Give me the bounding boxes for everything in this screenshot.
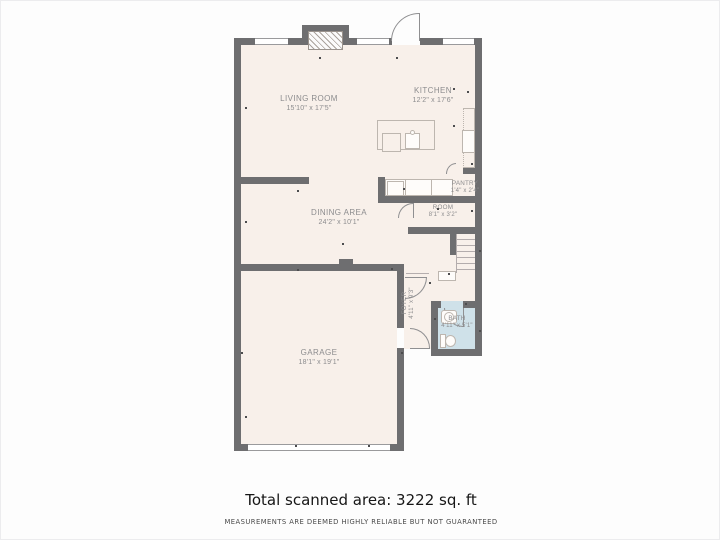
room-door-leaf (413, 203, 414, 218)
room-dims: 1'4" x 2'4" (447, 188, 483, 196)
scan-dot (368, 445, 370, 447)
scan-dot (467, 91, 469, 93)
room-dims: 18'1" x 19'1" (269, 358, 369, 368)
scan-dot (403, 188, 405, 190)
scan-dot (245, 221, 247, 223)
entry-door-arc (391, 13, 419, 41)
label-pantry: PANTRY 1'4" x 2'4" (447, 180, 483, 196)
wall-stairs-left (450, 234, 456, 255)
scan-dot (437, 208, 439, 210)
toilet-bowl (445, 335, 456, 347)
floor-plan: LIVING ROOM 15'10" x 17'5" KITCHEN 12'2"… (1, 1, 720, 540)
label-room: ROOM 8'1" x 3'2" (417, 204, 469, 220)
scan-dot (396, 57, 398, 59)
garage-entry-door-leaf (410, 348, 430, 349)
scan-dot (319, 57, 321, 59)
wall-bath-left (431, 301, 438, 356)
scan-dot (391, 268, 393, 270)
scan-dot (471, 163, 473, 165)
wall-left (234, 38, 241, 451)
scan-dot (448, 273, 450, 275)
label-living-room: LIVING ROOM 15'10" x 17'5" (259, 94, 359, 113)
room-name: LIVING ROOM (259, 94, 359, 104)
wall-room-top (378, 196, 482, 203)
fireplace (308, 31, 343, 50)
scan-dot (479, 250, 481, 252)
wall-dining-garage (234, 264, 404, 271)
staircase (456, 234, 476, 273)
scan-dot (453, 88, 455, 90)
floor-plan-page: LIVING ROOM 15'10" x 17'5" KITCHEN 12'2"… (0, 0, 720, 540)
stair-landing (438, 271, 456, 281)
room-dims: 15'10" x 17'5" (259, 104, 359, 114)
scan-dot (245, 107, 247, 109)
label-dining-area: DINING AREA 24'2" x 10'1" (289, 208, 389, 227)
room-dims: 4'11" x 5'1" (439, 323, 475, 331)
room-name: DINING AREA (289, 208, 389, 218)
scan-dot (342, 243, 344, 245)
wall-room-bottom (408, 227, 482, 234)
wall-bath-bottom (431, 349, 482, 356)
window-kitchen-1 (357, 38, 389, 45)
entry-door-leaf (419, 13, 420, 41)
bath-door-opening (441, 301, 463, 308)
kitchen-island-sink (405, 133, 420, 149)
appliance-1 (387, 181, 404, 196)
room-dims: 12'2" x 17'6" (393, 96, 473, 106)
total-area-text: Total scanned area: 3222 sq. ft (1, 491, 720, 509)
scan-dot (297, 269, 299, 271)
room-name: FOYER (401, 273, 409, 333)
room-dims: 8'1" x 3'2" (417, 212, 469, 220)
scan-dot (453, 125, 455, 127)
kitchen-faucet (410, 130, 415, 135)
label-kitchen: KITCHEN 12'2" x 17'6" (393, 86, 473, 105)
disclaimer-text: MEASUREMENTS ARE DEEMED HIGHLY RELIABLE … (1, 518, 720, 526)
scan-dot (465, 303, 467, 305)
scan-dot (479, 330, 481, 332)
appliance-2 (405, 179, 432, 196)
room-name: GARAGE (269, 348, 369, 358)
scan-dot (241, 352, 243, 354)
wall-garage-right-lower (397, 348, 404, 451)
label-bath: BATH 4'11" x 5'1" (439, 315, 475, 331)
scan-dot (401, 352, 403, 354)
label-garage: GARAGE 18'1" x 19'1" (269, 348, 369, 367)
room-name: ROOM (417, 204, 469, 212)
room-name: KITCHEN (393, 86, 473, 96)
wall-counter-stub (463, 168, 482, 174)
wall-living-dining-divider (241, 177, 309, 184)
room-name: BATH (439, 315, 475, 323)
kitchen-island-cooktop (382, 133, 401, 152)
scan-dot (245, 416, 247, 418)
window-living-1 (255, 38, 288, 45)
room-name: PANTRY (447, 180, 483, 188)
scan-dot (429, 282, 431, 284)
scan-dot (295, 445, 297, 447)
label-foyer: FOYER 4'11" x 9'3" (401, 273, 423, 333)
scan-dot (434, 318, 436, 320)
stove (462, 130, 475, 153)
room-dims: 4'11" x 9'3" (409, 273, 417, 333)
room-dims: 24'2" x 10'1" (289, 218, 389, 228)
window-kitchen-2 (443, 38, 474, 45)
wall-pillar (339, 259, 353, 264)
scan-dot (471, 210, 473, 212)
scan-dot (297, 190, 299, 192)
